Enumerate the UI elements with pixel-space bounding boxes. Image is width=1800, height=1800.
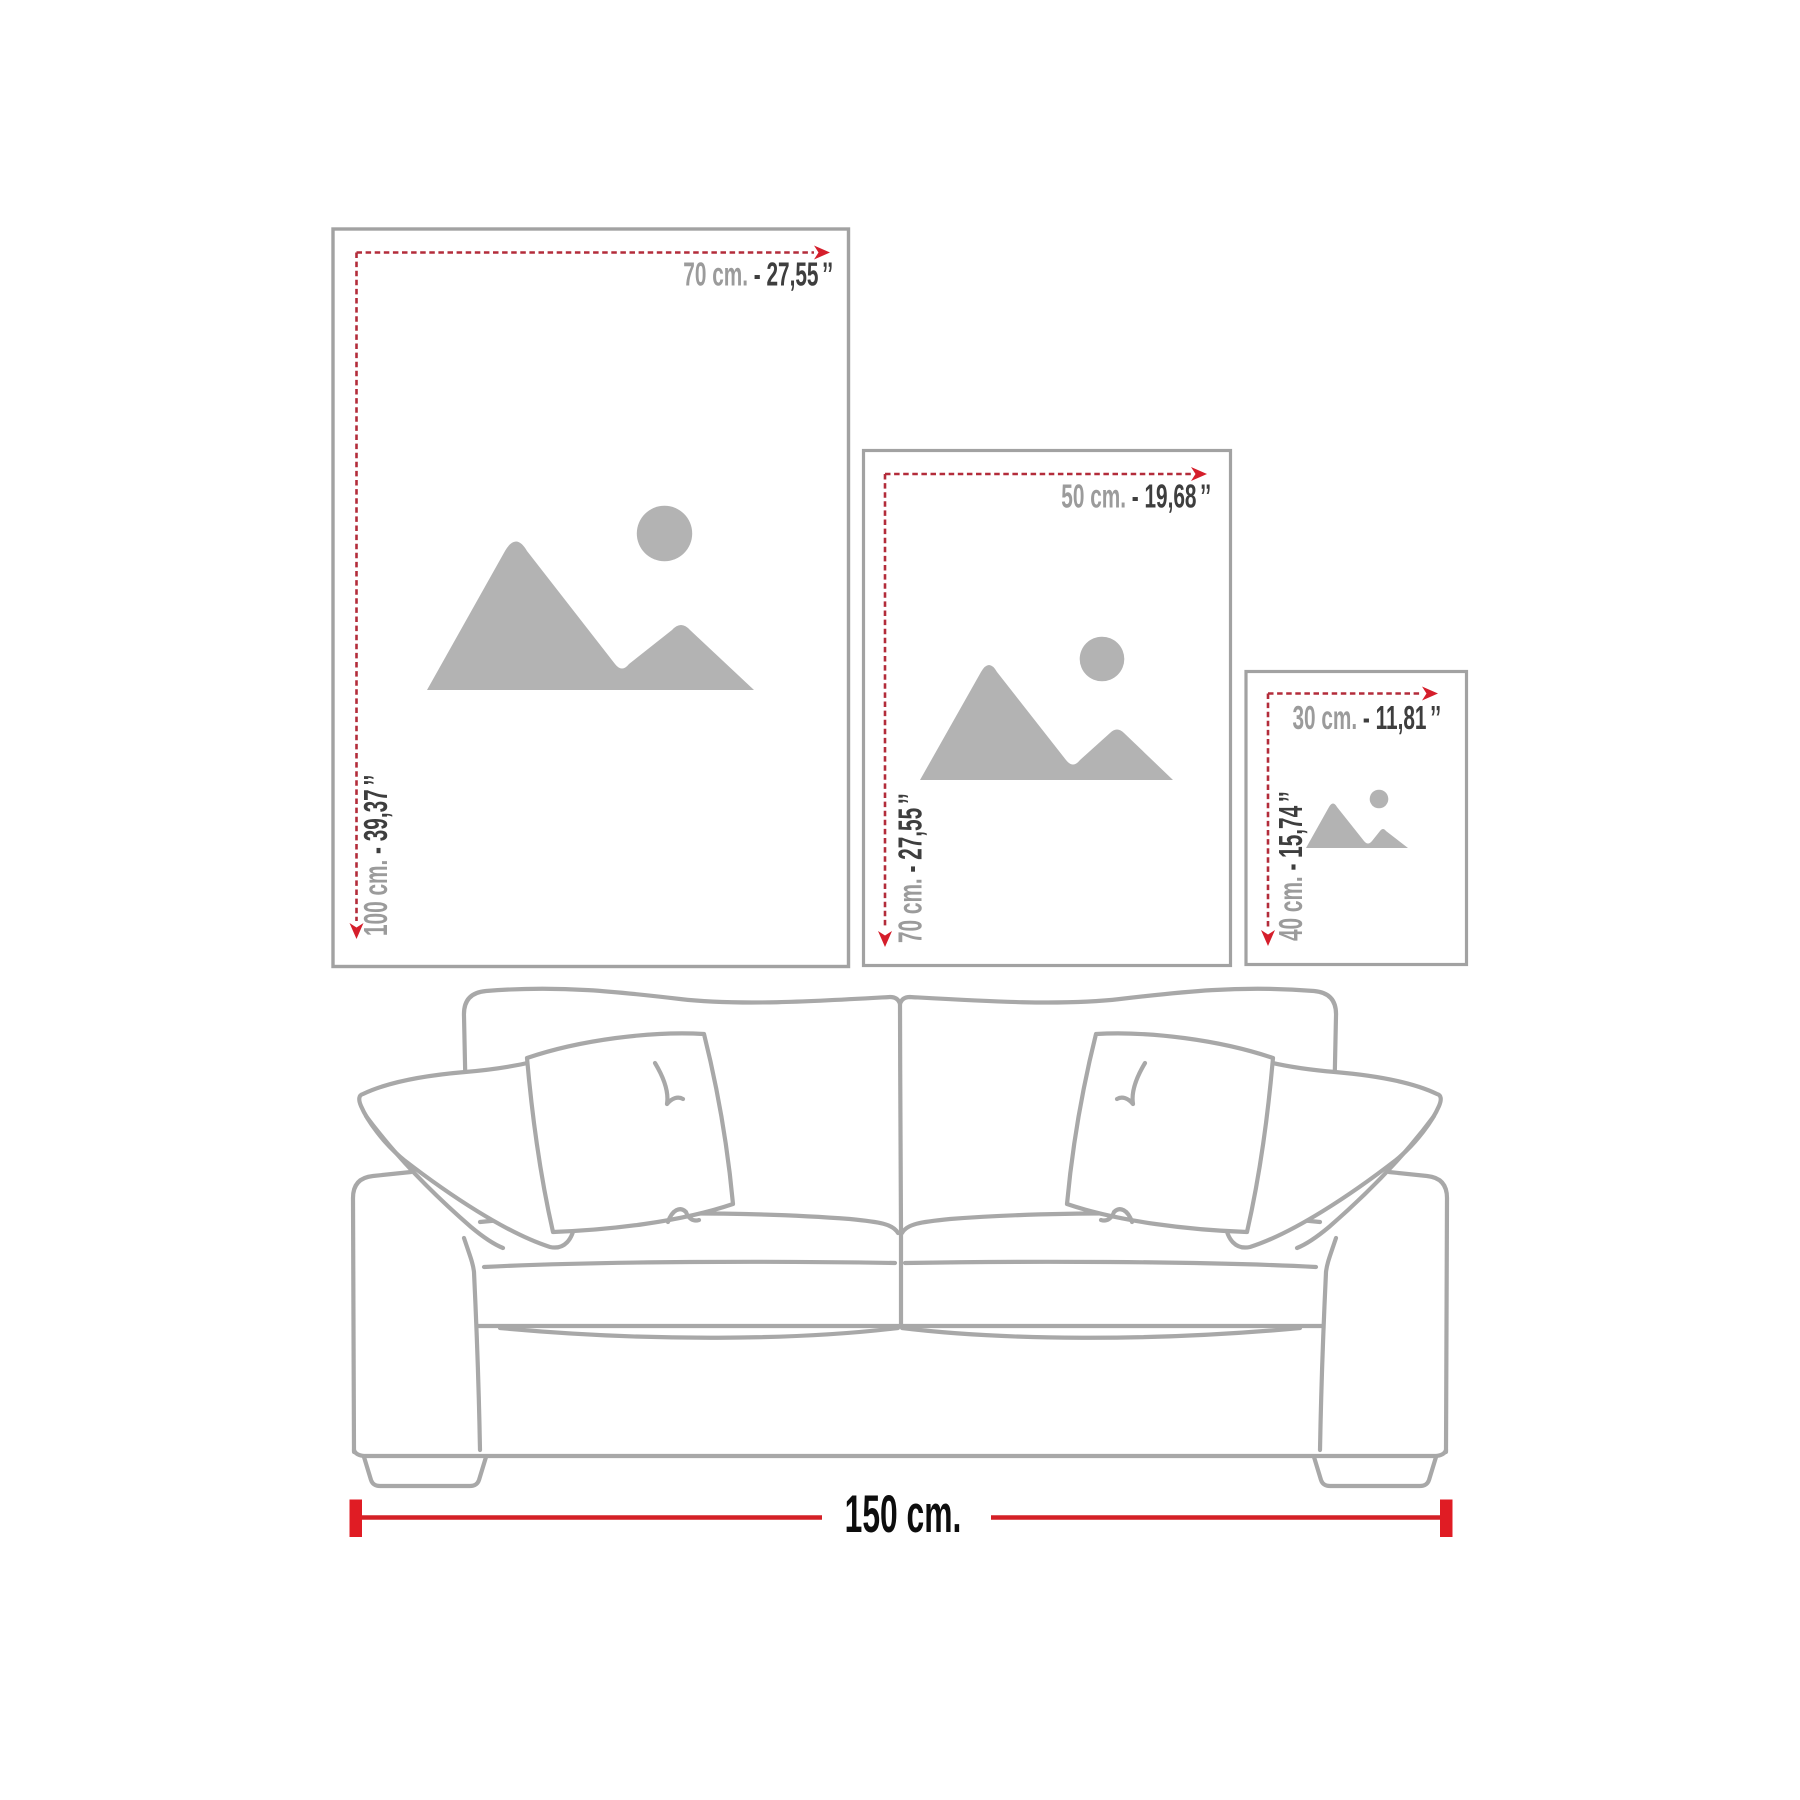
svg-text:50 cm. - 19,68’’: 50 cm. - 19,68’’ — [1061, 478, 1211, 515]
svg-text:40 cm. - 15,74’’: 40 cm. - 15,74’’ — [1272, 791, 1309, 941]
svg-text:100 cm. - 39,37’’: 100 cm. - 39,37’’ — [357, 775, 394, 936]
svg-text:70 cm. - 27,55’’: 70 cm. - 27,55’’ — [683, 256, 833, 293]
svg-text:150 cm.: 150 cm. — [845, 1485, 962, 1544]
svg-text:30 cm. - 11,81’’: 30 cm. - 11,81’’ — [1292, 699, 1441, 736]
svg-text:70 cm. - 27,55’’: 70 cm. - 27,55’’ — [892, 793, 929, 943]
